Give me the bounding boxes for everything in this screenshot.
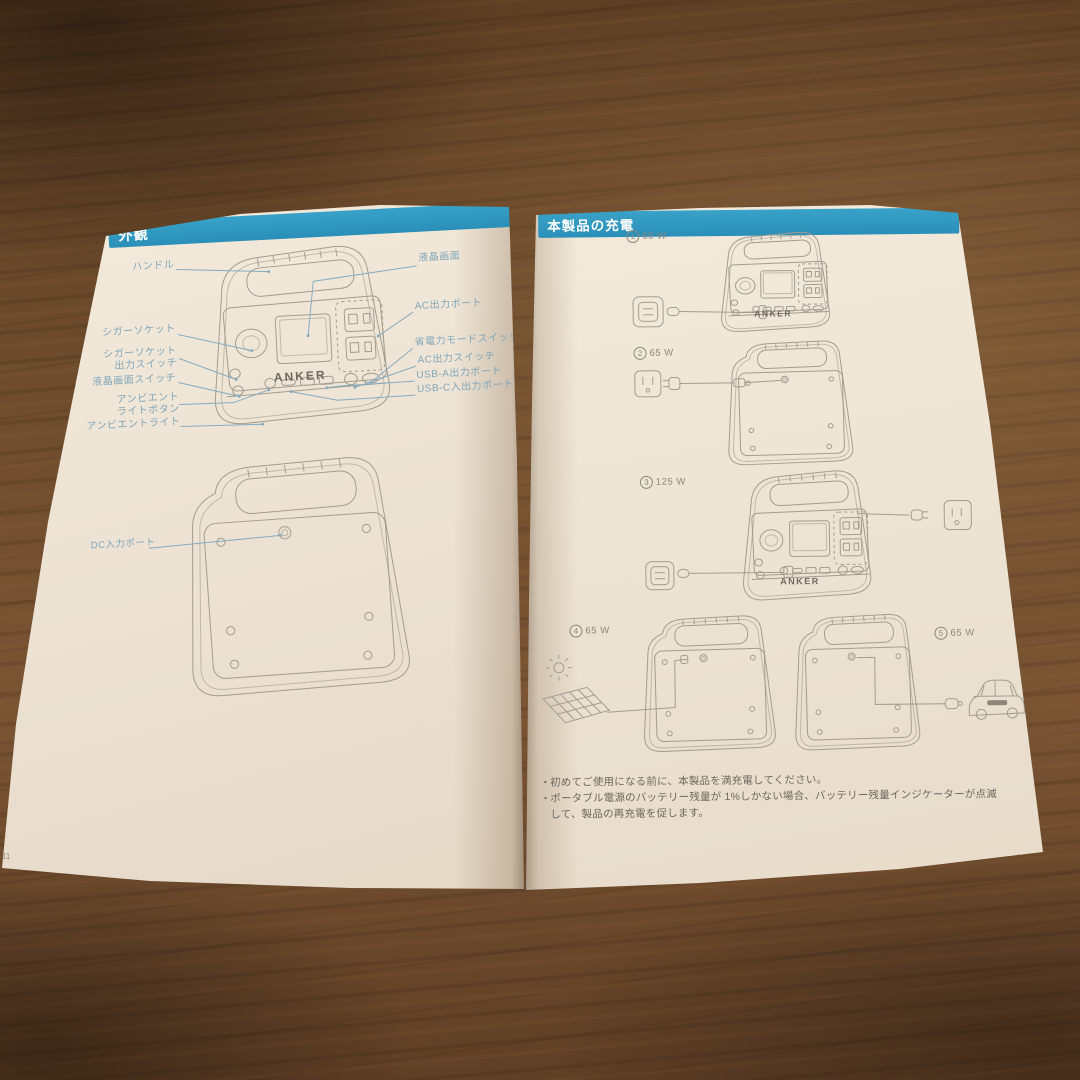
method-3-number-badge: 3: [640, 476, 653, 489]
label-handle: ハンドル: [132, 260, 175, 274]
method-4-wattage: 65 W: [585, 625, 609, 636]
anker-brand-logo: ANKER: [751, 308, 795, 318]
usb-charger-icon: [646, 560, 793, 590]
method-5-number-badge: 5: [934, 627, 947, 640]
method-4-label: 4 65 W: [569, 624, 609, 637]
method-3-label: 3 125 W: [640, 475, 686, 488]
car-charger-icon: [857, 657, 963, 710]
bullet-marker: ・: [540, 775, 550, 791]
solar-panel-icon: [543, 655, 689, 723]
label-lcd-screen: 液晶画面: [418, 251, 461, 265]
method-5-wattage: 65 W: [950, 627, 974, 638]
wall-outlet-icon: [635, 369, 781, 397]
sun-icon: [546, 655, 572, 681]
left-page-content: 外観: [70, 201, 554, 894]
method-2-number-badge: 2: [633, 347, 646, 360]
label-ambient-light-button: アンビエント ライトボタン: [95, 392, 180, 420]
photo-of-open-manual: 11 外観: [0, 0, 1080, 1080]
method-3-wattage: 125 W: [656, 476, 686, 487]
method-1-wattage: 60 W: [642, 231, 666, 242]
usb-charger-icon: [633, 296, 766, 327]
method-1-label: 1 60 W: [626, 230, 666, 243]
note-item: ・ ポータブル電源のバッテリー残量が 1%しかない場合、バッテリー残量インジケー…: [540, 786, 1012, 823]
method-2-label: 2 65 W: [633, 347, 673, 360]
method-2-wattage: 65 W: [650, 348, 674, 359]
bullet-marker: ・: [540, 791, 550, 823]
notes-list: ・ 初めてご使用になる前に、本製品を満充電してください。 ・ ポータブル電源のバ…: [540, 770, 1012, 823]
label-cigar-socket-output-switch: シガーソケット 出力スイッチ: [85, 346, 178, 375]
method-5-label: 5 65 W: [934, 626, 974, 639]
method-4-number-badge: 4: [569, 624, 582, 637]
ac-plug-to-outlet-icon: [857, 500, 971, 530]
car-icon: [969, 680, 1024, 720]
anker-brand-logo: ANKER: [776, 576, 824, 587]
method-1-number-badge: 1: [626, 230, 639, 243]
note-text: ポータブル電源のバッテリー残量が 1%しかない場合、バッテリー残量インジケーター…: [550, 786, 1006, 823]
